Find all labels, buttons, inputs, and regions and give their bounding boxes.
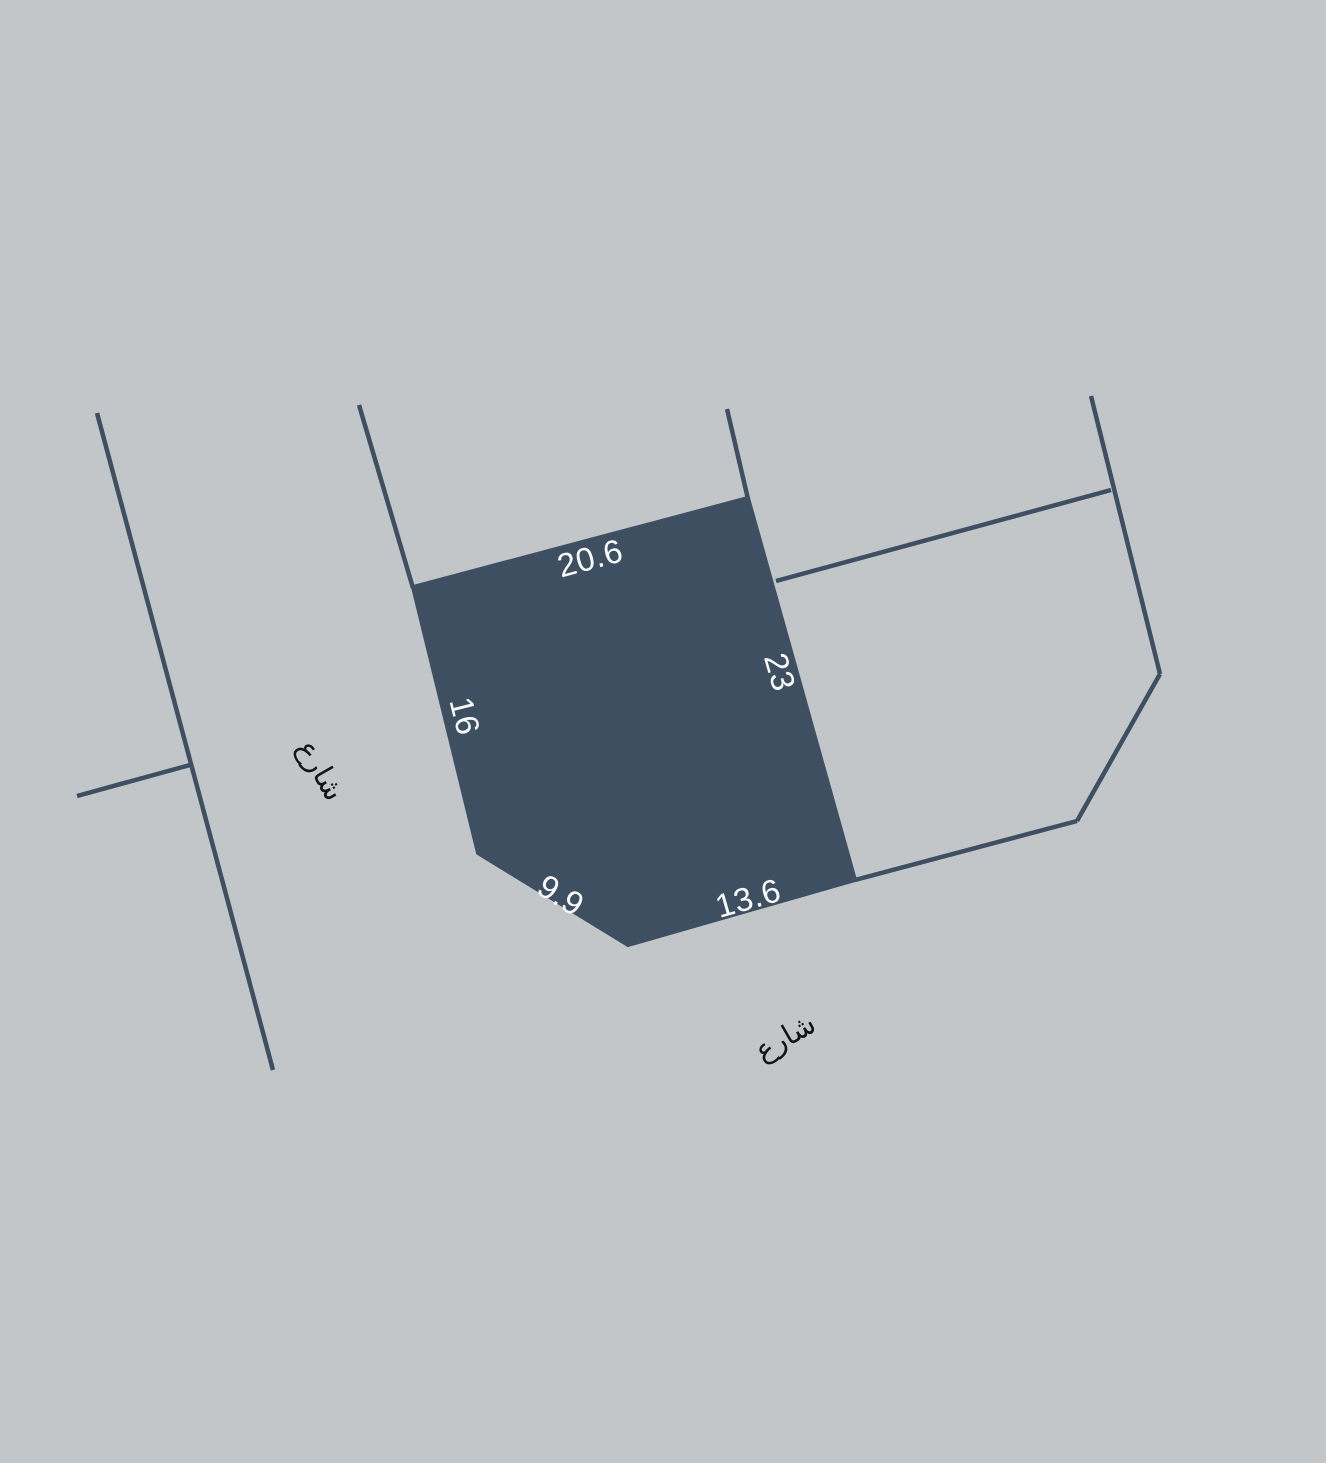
street-label-west: شارع	[290, 734, 352, 807]
west-street-branch-line	[77, 765, 190, 796]
east-parcel-bottom-boundary	[855, 821, 1077, 880]
street-label-south: شارع	[749, 1006, 822, 1068]
east-parcel-divider-line	[776, 490, 1111, 581]
plot-svg: 20.623169.913.6شارعشارع	[0, 0, 1326, 1463]
land-plot-map: 20.623169.913.6شارعشارع	[0, 0, 1326, 1463]
east-parcel-corner-boundary	[1077, 674, 1160, 821]
west-street-line	[97, 413, 273, 1070]
upper-right-boundary-line	[727, 409, 748, 499]
upper-left-boundary-line	[359, 405, 413, 588]
east-parcel-right-boundary	[1091, 396, 1160, 674]
